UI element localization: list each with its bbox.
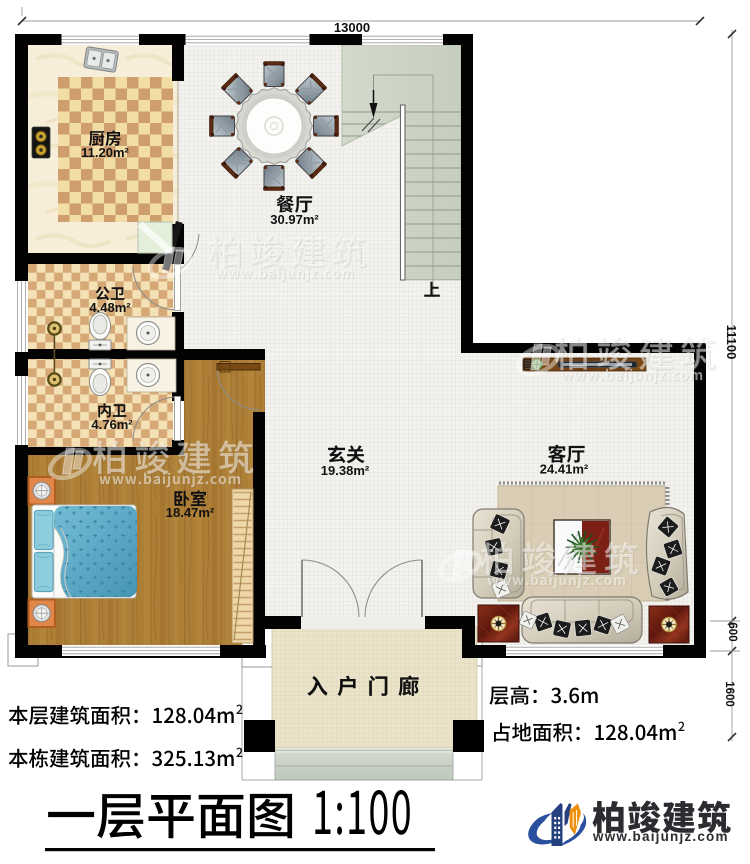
svg-text:11.20m²: 11.20m²	[81, 145, 129, 160]
svg-text:4.76m²: 4.76m²	[91, 417, 133, 432]
svg-text:4.48m²: 4.48m²	[89, 300, 131, 315]
svg-text:13000: 13000	[334, 20, 370, 35]
svg-text:24.41m²: 24.41m²	[540, 462, 589, 477]
svg-text:1600: 1600	[723, 681, 735, 707]
svg-text:600: 600	[726, 622, 738, 641]
svg-text:18.47m²: 18.47m²	[166, 505, 215, 520]
svg-text:19.38m²: 19.38m²	[321, 463, 370, 478]
svg-text:www.baijunjz.com: www.baijunjz.com	[592, 829, 729, 844]
svg-text:30.97m²: 30.97m²	[270, 212, 319, 227]
svg-text:11100: 11100	[724, 325, 739, 360]
